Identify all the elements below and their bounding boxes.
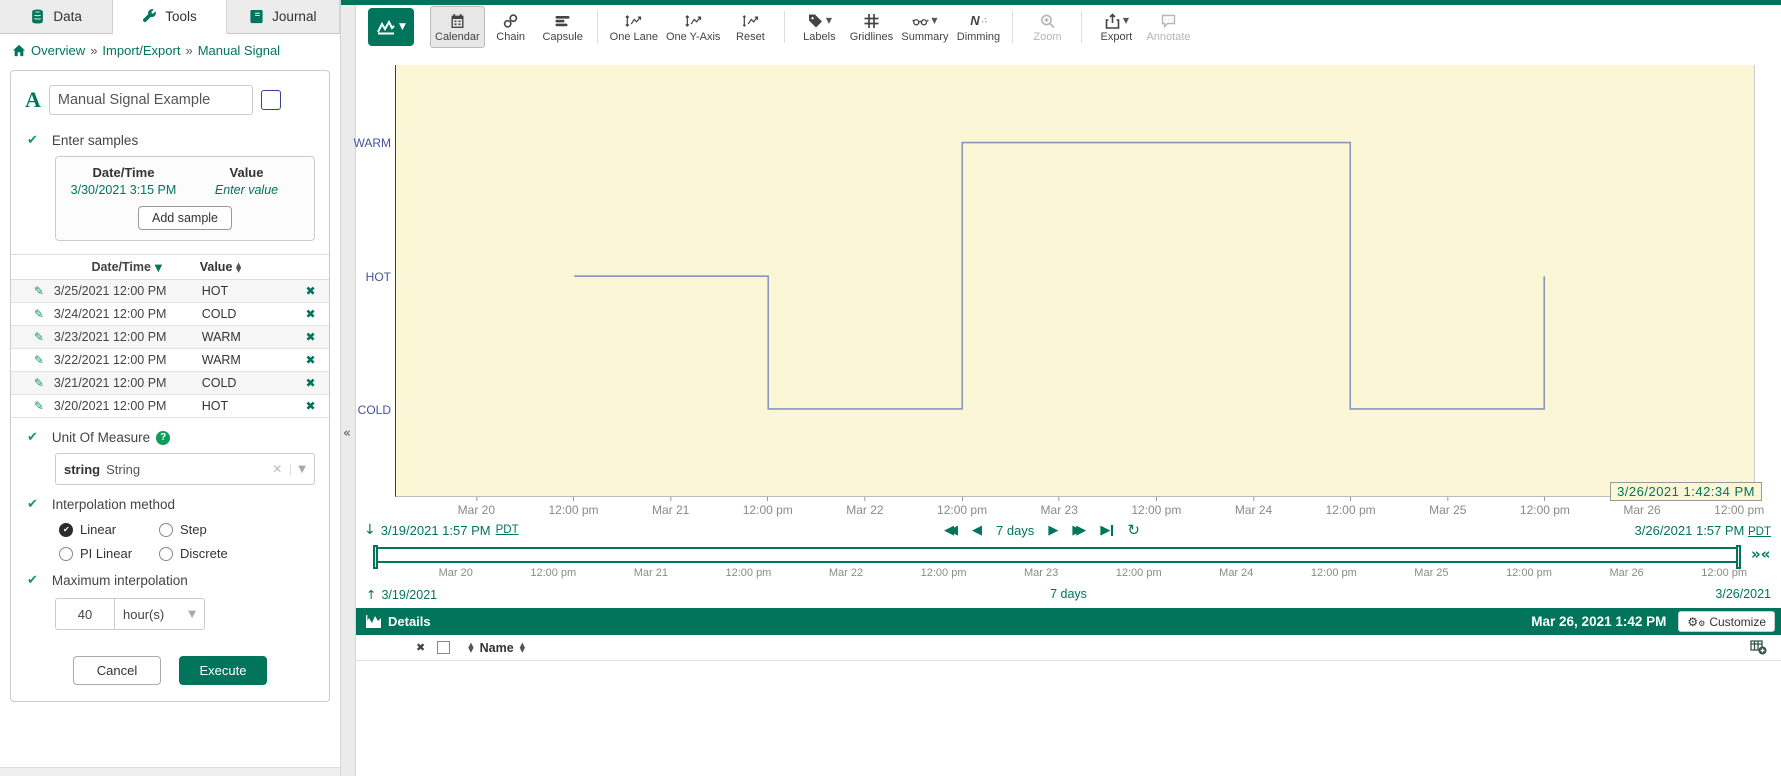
time-range-slider[interactable] — [374, 547, 1740, 563]
toolbar-one-lane-button[interactable]: One Lane — [606, 6, 662, 48]
arrow-down-icon: ↓ — [364, 522, 376, 538]
max-interpolation-label: Maximum interpolation — [52, 573, 188, 588]
uom-label: Unit Of Measure — [52, 430, 150, 445]
toolbar-one-y-axis-button[interactable]: One Y-Axis — [662, 6, 724, 48]
select-all-checkbox[interactable] — [437, 641, 450, 654]
annotate-comment-icon — [1160, 13, 1177, 29]
add-column-icon[interactable] — [1750, 639, 1767, 655]
x-axis-tick: Mar 20 — [458, 497, 495, 519]
slider-tick-label: 12:00 pm — [530, 567, 576, 579]
tab-journal[interactable]: Journal — [227, 0, 340, 33]
toolbar-zoom-button: Zoom — [1021, 6, 1073, 48]
timezone-link[interactable]: PDT — [1748, 526, 1771, 538]
signal-name-type-icon: A — [25, 87, 41, 113]
toolbar-capsule-button[interactable]: Capsule — [537, 6, 589, 48]
toolbar-reset-button[interactable]: Reset — [724, 6, 776, 48]
tab-tools[interactable]: Tools — [113, 0, 226, 34]
details-name-header[interactable]: Name — [480, 641, 514, 655]
x-axis-tick: 12:00 pm — [548, 497, 598, 519]
radio-linear[interactable]: Linear — [59, 522, 159, 537]
sample-row: ✎3/21/2021 12:00 PMCOLD✖ — [11, 372, 329, 395]
sort-icon[interactable]: ▲▼ — [520, 643, 525, 653]
samples-table: Date/Time ▼ Value ▲▼ ✎3/25/2021 12:00 PM… — [11, 254, 329, 418]
help-icon[interactable]: ? — [156, 431, 170, 445]
radio-selected-icon — [59, 523, 73, 537]
y-axis-label: HOT — [366, 270, 391, 284]
details-chart-icon — [366, 615, 381, 628]
refresh-icon[interactable]: ↻ — [1127, 521, 1140, 539]
sample-value: WARM — [200, 349, 292, 372]
edit-icon[interactable]: ✎ — [34, 330, 44, 344]
sample-value: HOT — [200, 280, 292, 303]
slider-handle-left[interactable] — [373, 545, 378, 569]
breadcrumb-separator: » — [90, 43, 97, 58]
delete-sample-icon[interactable]: ✖ — [305, 376, 315, 390]
check-icon: ✔ — [27, 573, 38, 588]
samples-value-header[interactable]: Value ▲▼ — [200, 255, 292, 280]
slider-handle-right[interactable] — [1736, 545, 1741, 569]
new-sample-box: Date/Time Value 3/30/2021 3:15 PM Enter … — [55, 156, 315, 241]
gears-icon: ⚙⚙ — [1687, 615, 1705, 629]
x-axis-tick: Mar 23 — [1041, 497, 1078, 519]
toolbar-calendar-button[interactable]: Calendar — [430, 6, 485, 48]
breadcrumb: Overview » Import/Export » Manual Signal — [0, 34, 340, 64]
x-axis-tick: Mar 24 — [1235, 497, 1272, 519]
step-back-full-icon[interactable]: ◀◀ — [944, 523, 958, 538]
arrow-up-icon: ↑ — [366, 587, 376, 602]
interpolation-label: Interpolation method — [52, 497, 175, 512]
timezone-link[interactable]: PDT — [496, 524, 519, 536]
x-axis-tick: Mar 25 — [1429, 497, 1466, 519]
sample-row: ✎3/20/2021 12:00 PMHOT✖ — [11, 395, 329, 418]
uom-code: string — [64, 462, 100, 477]
chevron-down-icon: ▼ — [399, 22, 406, 32]
slider-tick-label: 12:00 pm — [1506, 567, 1552, 579]
slider-tick-label: 12:00 pm — [1701, 567, 1747, 579]
slider-start-date: ↑3/19/2021 — [366, 587, 437, 602]
details-table-header: ✖ ▲▼ Name ▲▼ — [356, 635, 1781, 661]
sample-value: COLD — [200, 303, 292, 326]
toolbar-export-button[interactable]: ▼ Export — [1090, 6, 1142, 48]
capsule-lanes-icon — [554, 13, 571, 29]
sample-datetime: 3/24/2021 12:00 PM — [46, 303, 200, 326]
radio-icon — [159, 547, 173, 561]
home-icon — [12, 44, 26, 57]
sample-value: WARM — [200, 326, 292, 349]
panel-divider: « — [341, 0, 356, 776]
edit-icon[interactable]: ✎ — [34, 399, 44, 413]
uom-select[interactable]: string String ✕ ▼ — [55, 453, 315, 485]
manual-signal-tool-panel: A ✔ Enter samples Date/Time Value 3/30/2… — [10, 70, 330, 702]
toolbar-summary-button[interactable]: ▼ Summary — [897, 6, 952, 48]
samples-datetime-header[interactable]: Date/Time ▼ — [46, 255, 200, 280]
slider-collapse-icon[interactable]: »« — [1751, 545, 1770, 563]
step-forward-full-icon[interactable]: ▶▶ — [1072, 523, 1086, 538]
slider-tick-label: Mar 24 — [1219, 567, 1253, 579]
sort-desc-icon: ▼ — [154, 263, 162, 274]
slider-tick-label: 12:00 pm — [1311, 567, 1357, 579]
time-nav-group: ◀◀ ◀ 7 days ▶ ▶▶ ▶ ↻ — [944, 521, 1140, 539]
toolbar-gridlines-button[interactable]: Gridlines — [845, 6, 897, 48]
step-forward-icon[interactable]: ▶ — [1048, 523, 1058, 538]
delete-sample-icon[interactable]: ✖ — [305, 399, 315, 413]
sample-value: COLD — [200, 372, 292, 395]
check-icon: ✔ — [27, 133, 38, 148]
sidebar-tabbar: Data Tools Journal — [0, 0, 340, 34]
tab-data-label: Data — [53, 9, 82, 24]
step-back-icon[interactable]: ◀ — [972, 523, 982, 538]
edit-icon[interactable]: ✎ — [34, 307, 44, 321]
breadcrumb-separator: » — [185, 43, 192, 58]
enter-samples-label: Enter samples — [52, 133, 138, 148]
step-to-end-icon[interactable]: ▶ — [1100, 523, 1113, 538]
radio-discrete[interactable]: Discrete — [159, 546, 269, 561]
gridlines-icon — [863, 13, 880, 29]
range-start: ↓ 3/19/2021 1:57 PM PDT — [364, 522, 519, 538]
tag-icon — [807, 13, 824, 29]
chain-link-icon — [502, 13, 519, 29]
edit-icon[interactable]: ✎ — [34, 353, 44, 367]
x-axis-tick: Mar 22 — [846, 497, 883, 519]
trend-plot-area[interactable] — [395, 65, 1755, 497]
x-axis-tick: 12:00 pm — [743, 497, 793, 519]
x-axis: Mar 2012:00 pmMar 2112:00 pmMar 2212:00 … — [395, 497, 1755, 517]
sidebar-footer — [0, 767, 340, 776]
sample-row: ✎3/25/2021 12:00 PMHOT✖ — [11, 280, 329, 303]
collapse-sidebar-handle[interactable]: « — [343, 426, 351, 441]
breadcrumb-import-export[interactable]: Import/Export — [102, 43, 180, 58]
one-y-axis-icon — [685, 13, 702, 29]
toolbar-separator — [597, 11, 598, 43]
y-axis-label: COLD — [358, 403, 391, 417]
delete-sample-icon[interactable]: ✖ — [305, 330, 315, 344]
sample-row: ✎3/23/2021 12:00 PMWARM✖ — [11, 326, 329, 349]
slider-tick-label: Mar 21 — [634, 567, 668, 579]
x-axis-tick: 12:00 pm — [1520, 497, 1570, 519]
sample-row: ✎3/24/2021 12:00 PMCOLD✖ — [11, 303, 329, 326]
main-area: ▼ Calendar Chain Capsule One Lane One Y-… — [356, 0, 1781, 776]
slider-tick-label: 12:00 pm — [725, 567, 771, 579]
slider-footer: ↑3/19/2021 7 days 3/26/2021 — [356, 587, 1781, 602]
remove-all-icon[interactable]: ✖ — [416, 641, 425, 654]
summary-icon — [912, 13, 929, 29]
toolbar-separator — [1012, 11, 1013, 43]
add-sample-button[interactable]: Add sample — [138, 206, 232, 230]
sort-icon[interactable]: ▲▼ — [468, 643, 473, 653]
sample-datetime: 3/23/2021 12:00 PM — [46, 326, 200, 349]
toolbar-annotate-button: Annotate — [1142, 6, 1194, 48]
radio-step[interactable]: Step — [159, 522, 269, 537]
max-interpolation-value-input[interactable] — [55, 598, 115, 630]
wrench-icon — [142, 9, 157, 24]
reset-icon — [742, 13, 759, 29]
execute-button[interactable]: Execute — [179, 656, 267, 685]
toolbar-separator — [784, 11, 785, 43]
delete-sample-icon[interactable]: ✖ — [305, 353, 315, 367]
details-title: Details — [388, 614, 431, 629]
tab-tools-label: Tools — [165, 9, 197, 24]
x-axis-tick: 12:00 pm — [1326, 497, 1376, 519]
sample-datetime: 3/25/2021 12:00 PM — [46, 280, 200, 303]
slider-tick-label: Mar 22 — [829, 567, 863, 579]
toolbar-dimming-button[interactable]: N∴ Dimming — [952, 6, 1004, 48]
slider-tick-labels: Mar 2012:00 pmMar 2112:00 pmMar 2212:00 … — [374, 567, 1740, 583]
edit-icon[interactable]: ✎ — [34, 376, 44, 390]
tab-journal-label: Journal — [272, 9, 316, 24]
chevron-down-icon[interactable]: ▼ — [290, 464, 306, 475]
breadcrumb-manual-signal[interactable]: Manual Signal — [198, 43, 280, 58]
x-axis-tick: 12:00 pm — [937, 497, 987, 519]
new-sample-datetime[interactable]: 3/30/2021 3:15 PM — [62, 183, 185, 197]
delete-sample-icon[interactable]: ✖ — [305, 307, 315, 321]
radio-pi-linear[interactable]: PI Linear — [59, 546, 159, 561]
clear-icon[interactable]: ✕ — [272, 462, 282, 476]
details-timestamp: Mar 26, 2021 1:42 PM — [1531, 614, 1666, 629]
sample-datetime: 3/21/2021 12:00 PM — [46, 372, 200, 395]
sample-value: HOT — [200, 395, 292, 418]
y-axis-label: WARM — [353, 136, 391, 150]
book-icon — [249, 9, 264, 24]
view-mode-dropdown-button[interactable]: ▼ — [368, 8, 414, 46]
signal-step-line — [574, 143, 1544, 409]
radio-icon — [159, 523, 173, 537]
breadcrumb-overview[interactable]: Overview — [31, 43, 85, 58]
range-end-time[interactable]: 3/26/2021 1:57 PM — [1635, 523, 1745, 538]
cursor-timestamp-box: 3/26/2021 1:42:34 PM — [1610, 482, 1762, 501]
max-interpolation-unit-select[interactable]: hour(s) ▼ — [115, 598, 205, 630]
uom-name: String — [106, 462, 272, 477]
slider-tick-label: 12:00 pm — [1116, 567, 1162, 579]
zoom-magnifier-icon — [1039, 13, 1056, 29]
signal-name-input[interactable] — [49, 85, 253, 115]
slider-tick-label: 12:00 pm — [921, 567, 967, 579]
chevron-down-icon: ▼ — [188, 609, 196, 620]
sample-datetime: 3/20/2021 12:00 PM — [46, 395, 200, 418]
trend-chart-icon — [376, 19, 396, 35]
sample-datetime: 3/22/2021 12:00 PM — [46, 349, 200, 372]
cancel-button[interactable]: Cancel — [73, 656, 161, 685]
delete-sample-icon[interactable]: ✖ — [305, 284, 315, 298]
toolbar-labels-button[interactable]: ▼ Labels — [793, 6, 845, 48]
range-start-time[interactable]: 3/19/2021 1:57 PM — [381, 523, 491, 538]
radio-icon — [59, 547, 73, 561]
range-end: 3/26/2021 1:57 PM PDT — [1635, 523, 1771, 538]
x-axis-tick: 12:00 pm — [1131, 497, 1181, 519]
x-axis-tick: Mar 21 — [652, 497, 689, 519]
slider-duration: 7 days — [1050, 587, 1087, 601]
details-panel-header: Details Mar 26, 2021 1:42 PM ⚙⚙ Customiz… — [356, 608, 1781, 635]
display-range-row: ↓ 3/19/2021 1:57 PM PDT ◀◀ ◀ 7 days ▶ ▶▶… — [356, 518, 1781, 542]
sidebar: Data Tools Journal Overview » Import/Exp… — [0, 0, 341, 776]
new-sample-value-input[interactable]: Enter value — [185, 183, 308, 197]
export-icon — [1104, 13, 1121, 29]
dimming-icon: N∴ — [970, 12, 986, 30]
check-icon: ✔ — [27, 430, 38, 445]
slider-tick-label: Mar 23 — [1024, 567, 1058, 579]
slider-end-date: 3/26/2021 — [1715, 587, 1771, 602]
interpolation-options: Linear Step PI Linear Discrete — [59, 522, 329, 561]
new-sample-value-header: Value — [185, 165, 308, 180]
y-axis-labels: WARMHOTCOLD — [356, 65, 394, 497]
customize-button[interactable]: ⚙⚙ Customize — [1678, 611, 1775, 632]
sort-icon: ▲▼ — [236, 263, 241, 273]
database-icon — [30, 9, 45, 24]
chart-toolbar: ▼ Calendar Chain Capsule One Lane One Y-… — [356, 5, 1781, 49]
slider-tick-label: Mar 20 — [439, 567, 473, 579]
tab-data[interactable]: Data — [0, 0, 113, 33]
new-sample-datetime-header: Date/Time — [62, 165, 185, 180]
signal-color-swatch[interactable] — [261, 90, 281, 110]
toolbar-separator — [1081, 11, 1082, 43]
edit-icon[interactable]: ✎ — [34, 284, 44, 298]
toolbar-chain-button[interactable]: Chain — [485, 6, 537, 48]
one-lane-icon — [625, 13, 642, 29]
slider-tick-label: Mar 25 — [1414, 567, 1448, 579]
sample-row: ✎3/22/2021 12:00 PMWARM✖ — [11, 349, 329, 372]
range-duration[interactable]: 7 days — [996, 523, 1034, 538]
check-icon: ✔ — [27, 497, 38, 512]
calendar-icon — [449, 13, 466, 29]
slider-tick-label: Mar 26 — [1609, 567, 1643, 579]
